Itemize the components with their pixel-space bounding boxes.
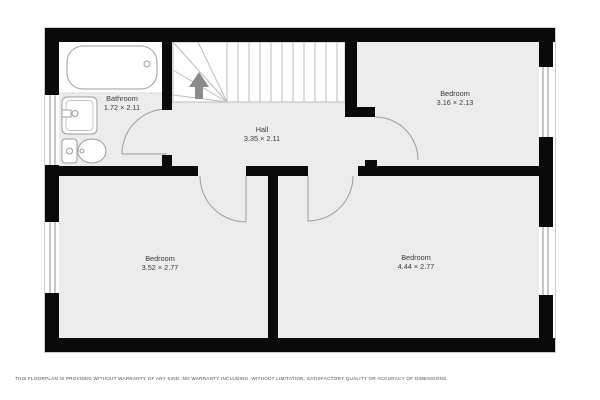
wall-left-seg (45, 28, 59, 95)
wall-bottom (45, 338, 555, 352)
room-label-bedroom-bottomright: Bedroom 4.44 × 2.77 (398, 253, 435, 271)
wall-mid-seg (59, 166, 198, 176)
wall-mid-seg (358, 166, 539, 176)
bathtub-drain (144, 61, 150, 67)
room-name: Bathroom (106, 94, 138, 103)
room-dims: 3.16 × 2.13 (437, 98, 474, 107)
window-bathroom (50, 95, 55, 165)
room-label-bedroom-bottomleft: Bedroom 3.52 × 2.77 (142, 254, 179, 272)
wall-right-seg (539, 137, 553, 227)
window-bedroom-topright (543, 67, 548, 137)
window-bedroom-bottomright (543, 227, 548, 295)
wall-right-seg (539, 28, 553, 67)
room-name: Hall (256, 125, 269, 134)
room-name: Bedroom (145, 254, 175, 263)
floorplan-page: Bathroom 1.72 × 2.11 Hall 3.35 × 2.11 Be… (0, 0, 600, 400)
window-bedroom-left (50, 222, 55, 293)
room-dims: 1.72 × 2.11 (104, 103, 140, 112)
wall-left-seg (45, 293, 59, 352)
wall-bathroom-east (162, 42, 172, 110)
bathtub-icon (67, 46, 157, 89)
disclaimer-text: THIS FLOORPLAN IS PROVIDED WITHOUT WARRA… (15, 376, 448, 381)
wall-jog (345, 107, 375, 117)
floorplan-canvas: Bathroom 1.72 × 2.11 Hall 3.35 × 2.11 Be… (0, 0, 600, 400)
room-dims: 3.35 × 2.11 (244, 134, 280, 143)
wall-stub (162, 155, 172, 166)
wall-stairs-east (345, 42, 357, 107)
sink-faucet (62, 110, 71, 117)
wall-left-seg (45, 165, 59, 222)
wall-bedroom-divider (268, 166, 278, 338)
room-label-bedroom-topright: Bedroom 3.16 × 2.13 (437, 89, 474, 107)
room-dims: 3.52 × 2.77 (142, 263, 179, 272)
room-label-bathroom: Bathroom 1.72 × 2.11 (104, 94, 140, 112)
room-name: Bedroom (440, 89, 470, 98)
room-dims: 4.44 × 2.77 (398, 262, 435, 271)
wall-stub (365, 160, 377, 166)
wall-top (45, 28, 555, 42)
wall-right-seg (539, 295, 553, 352)
staircase (173, 42, 345, 102)
room-name: Bedroom (401, 253, 431, 262)
